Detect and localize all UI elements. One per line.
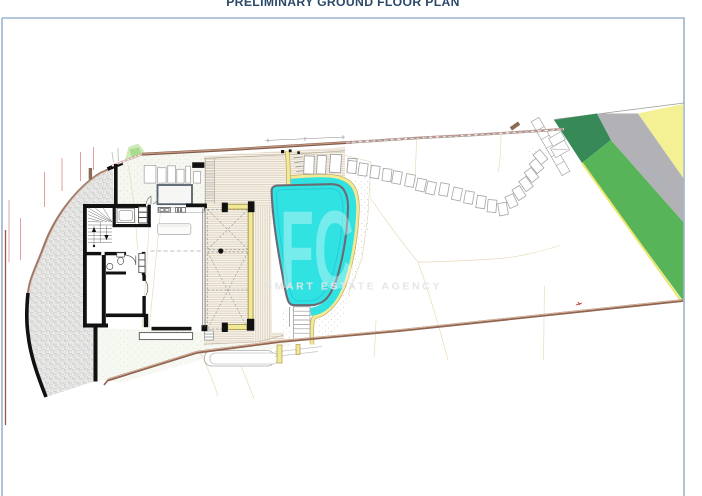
- svg-text:SMART ESTATE AGENCY: SMART ESTATE AGENCY: [265, 281, 442, 293]
- svg-text:PRELIMINARY GROUND FLOOR PLAN: PRELIMINARY GROUND FLOOR PLAN: [226, 0, 460, 9]
- svg-text:FC: FC: [280, 189, 354, 312]
